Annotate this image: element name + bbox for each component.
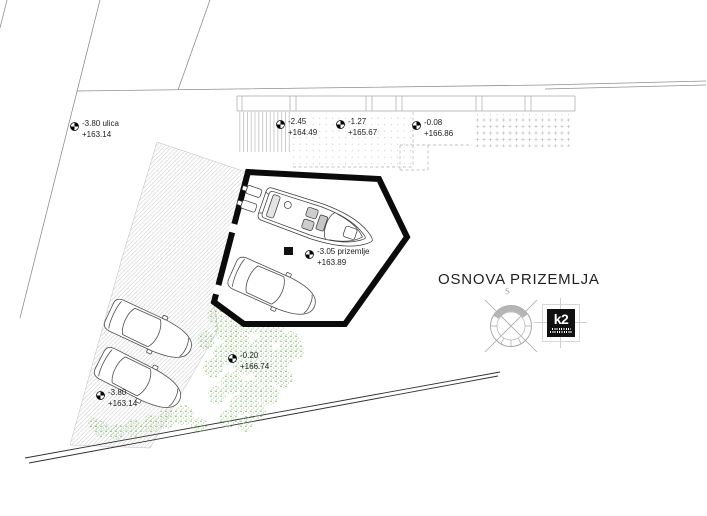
benchmark-icon: [336, 120, 345, 129]
benchmark-icon: [96, 391, 105, 400]
marker-absolute-level: +166.74: [240, 362, 269, 373]
marker-absolute-level: +166.86: [424, 129, 453, 140]
benchmark-icon: [70, 122, 79, 131]
logo-box: k2: [547, 309, 575, 337]
retaining-wall-band: [237, 96, 575, 111]
north-arrow-icon: [485, 300, 537, 352]
marker-absolute-level: +163.14: [82, 130, 119, 141]
logo-text: k2: [554, 313, 569, 326]
benchmark-icon: [305, 250, 314, 259]
site-plan-page: -3.80 ulica +163.14 -2.45 +164.49 -1.27 …: [0, 0, 707, 516]
interior-column: [284, 247, 293, 255]
benchmark-icon: [276, 120, 285, 129]
plan-title: OSNOVA PRIZEMLJA: [438, 271, 600, 288]
marker-relative-level: -0.20: [240, 351, 269, 362]
marker-relative-level: -1.27: [348, 117, 377, 128]
k2-logo: k2: [540, 302, 582, 344]
elevation-marker-garden: -0.20 +166.74: [228, 351, 269, 372]
marker-absolute-level: +163.89: [317, 258, 369, 269]
elevation-marker-terrace-2: -1.27 +165.67: [336, 117, 377, 138]
marker-relative-level: -3.05 prizemlje: [317, 247, 369, 258]
marker-relative-level: -3.80: [108, 388, 137, 399]
elevation-marker-street: -3.80 ulica +163.14: [70, 119, 119, 140]
benchmark-icon: [412, 121, 421, 130]
logo-fine-print: [552, 328, 571, 330]
marker-relative-level: -0.08: [424, 118, 453, 129]
marker-relative-level: -2.45: [288, 117, 317, 128]
marker-absolute-level: +163.14: [108, 399, 137, 410]
marker-absolute-level: +164.49: [288, 128, 317, 139]
benchmark-icon: [228, 354, 237, 363]
elevation-marker-parking: -3.80 +163.14: [96, 388, 137, 409]
paving-grid: [473, 114, 573, 147]
marker-relative-level: -3.80 ulica: [82, 119, 119, 130]
marker-absolute-level: +165.67: [348, 128, 377, 139]
elevation-marker-terrace-1: -2.45 +164.49: [276, 117, 317, 138]
logo-fine-print: [550, 331, 572, 333]
elevation-marker-ground-floor: -3.05 prizemlje +163.89: [305, 247, 369, 268]
elevation-marker-terrace-3: -0.08 +166.86: [412, 118, 453, 139]
